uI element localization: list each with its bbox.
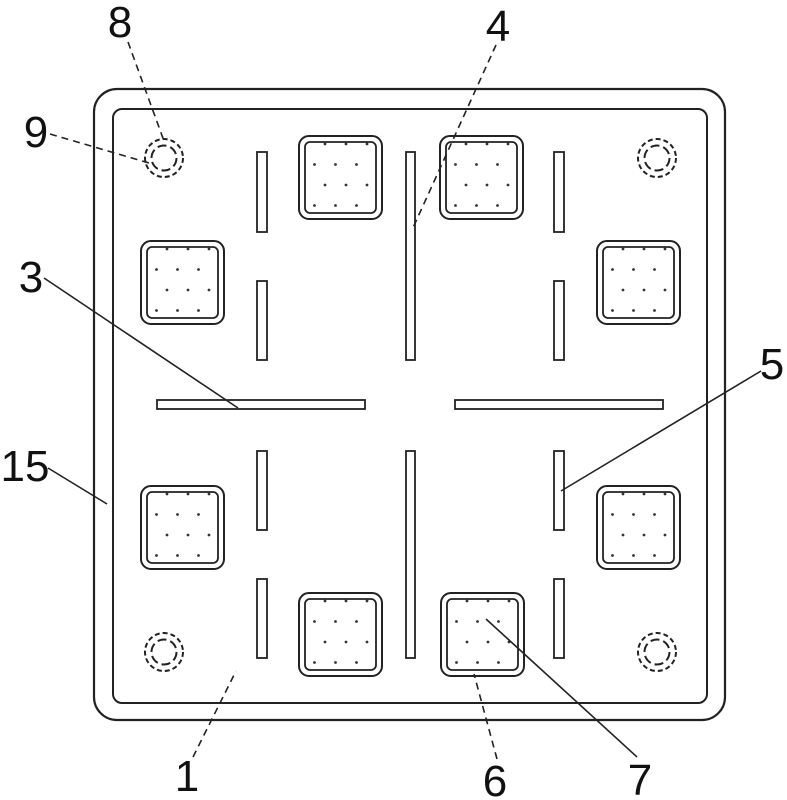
pad-square-bottom-left	[299, 593, 382, 676]
label-3: 3	[19, 253, 43, 302]
pad-square-top-left	[299, 136, 382, 219]
slot-vertical	[257, 579, 267, 658]
pad-square-upper-left	[141, 241, 224, 324]
pad-square-top-right	[440, 136, 523, 219]
label-8: 8	[108, 0, 132, 47]
mounting-hole-bottom-right	[638, 633, 676, 671]
slot-vertical-center-lower	[406, 451, 415, 658]
slot-vertical	[257, 451, 267, 530]
label-5: 5	[760, 340, 784, 389]
label-4: 4	[486, 2, 510, 51]
slot-vertical	[257, 152, 267, 232]
mounting-hole-top-right	[638, 139, 676, 177]
slot-vertical	[554, 152, 564, 232]
technical-drawing-canvas: 8 4 9 3 5 15 1 6 7	[0, 0, 787, 800]
slot-vertical-center-upper	[406, 152, 415, 360]
slot-horizontal-right	[455, 400, 663, 409]
label-6: 6	[483, 757, 507, 800]
slot-horizontal-left	[157, 400, 365, 409]
label-9: 9	[24, 108, 48, 157]
pad-square-upper-right	[597, 241, 680, 324]
label-1: 1	[175, 752, 199, 800]
slot-vertical	[257, 281, 267, 360]
mounting-hole-bottom-left	[145, 633, 183, 671]
mounting-hole-top-left	[145, 139, 183, 177]
slot-vertical	[554, 281, 564, 360]
label-7: 7	[628, 756, 652, 800]
pad-square-lower-left	[141, 486, 224, 569]
slot-vertical	[554, 579, 564, 658]
plate-figure: 8 4 9 3 5 15 1 6 7	[0, 0, 787, 800]
label-15: 15	[1, 442, 50, 491]
pad-square-bottom-right	[441, 593, 524, 676]
pad-square-lower-right	[597, 486, 680, 569]
